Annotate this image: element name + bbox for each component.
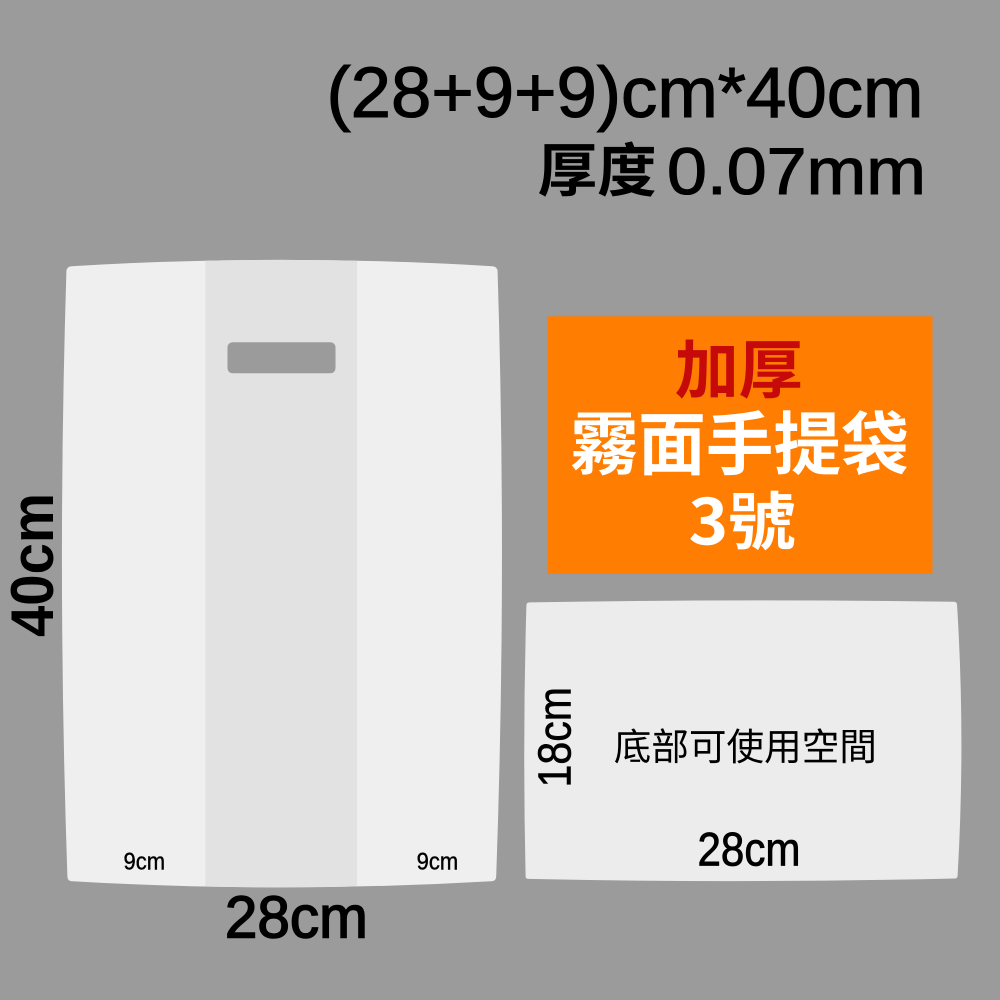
svg-text:0.07mm: 0.07mm bbox=[667, 134, 926, 208]
svg-text:28cm: 28cm bbox=[225, 885, 368, 951]
svg-text:(28+9+9)cm*40cm: (28+9+9)cm*40cm bbox=[327, 54, 924, 133]
svg-text:18cm: 18cm bbox=[529, 687, 581, 788]
svg-text:9cm: 9cm bbox=[124, 849, 166, 876]
svg-text:40cm: 40cm bbox=[0, 493, 66, 637]
svg-text:28cm: 28cm bbox=[698, 823, 801, 876]
svg-text:9cm: 9cm bbox=[417, 849, 459, 876]
